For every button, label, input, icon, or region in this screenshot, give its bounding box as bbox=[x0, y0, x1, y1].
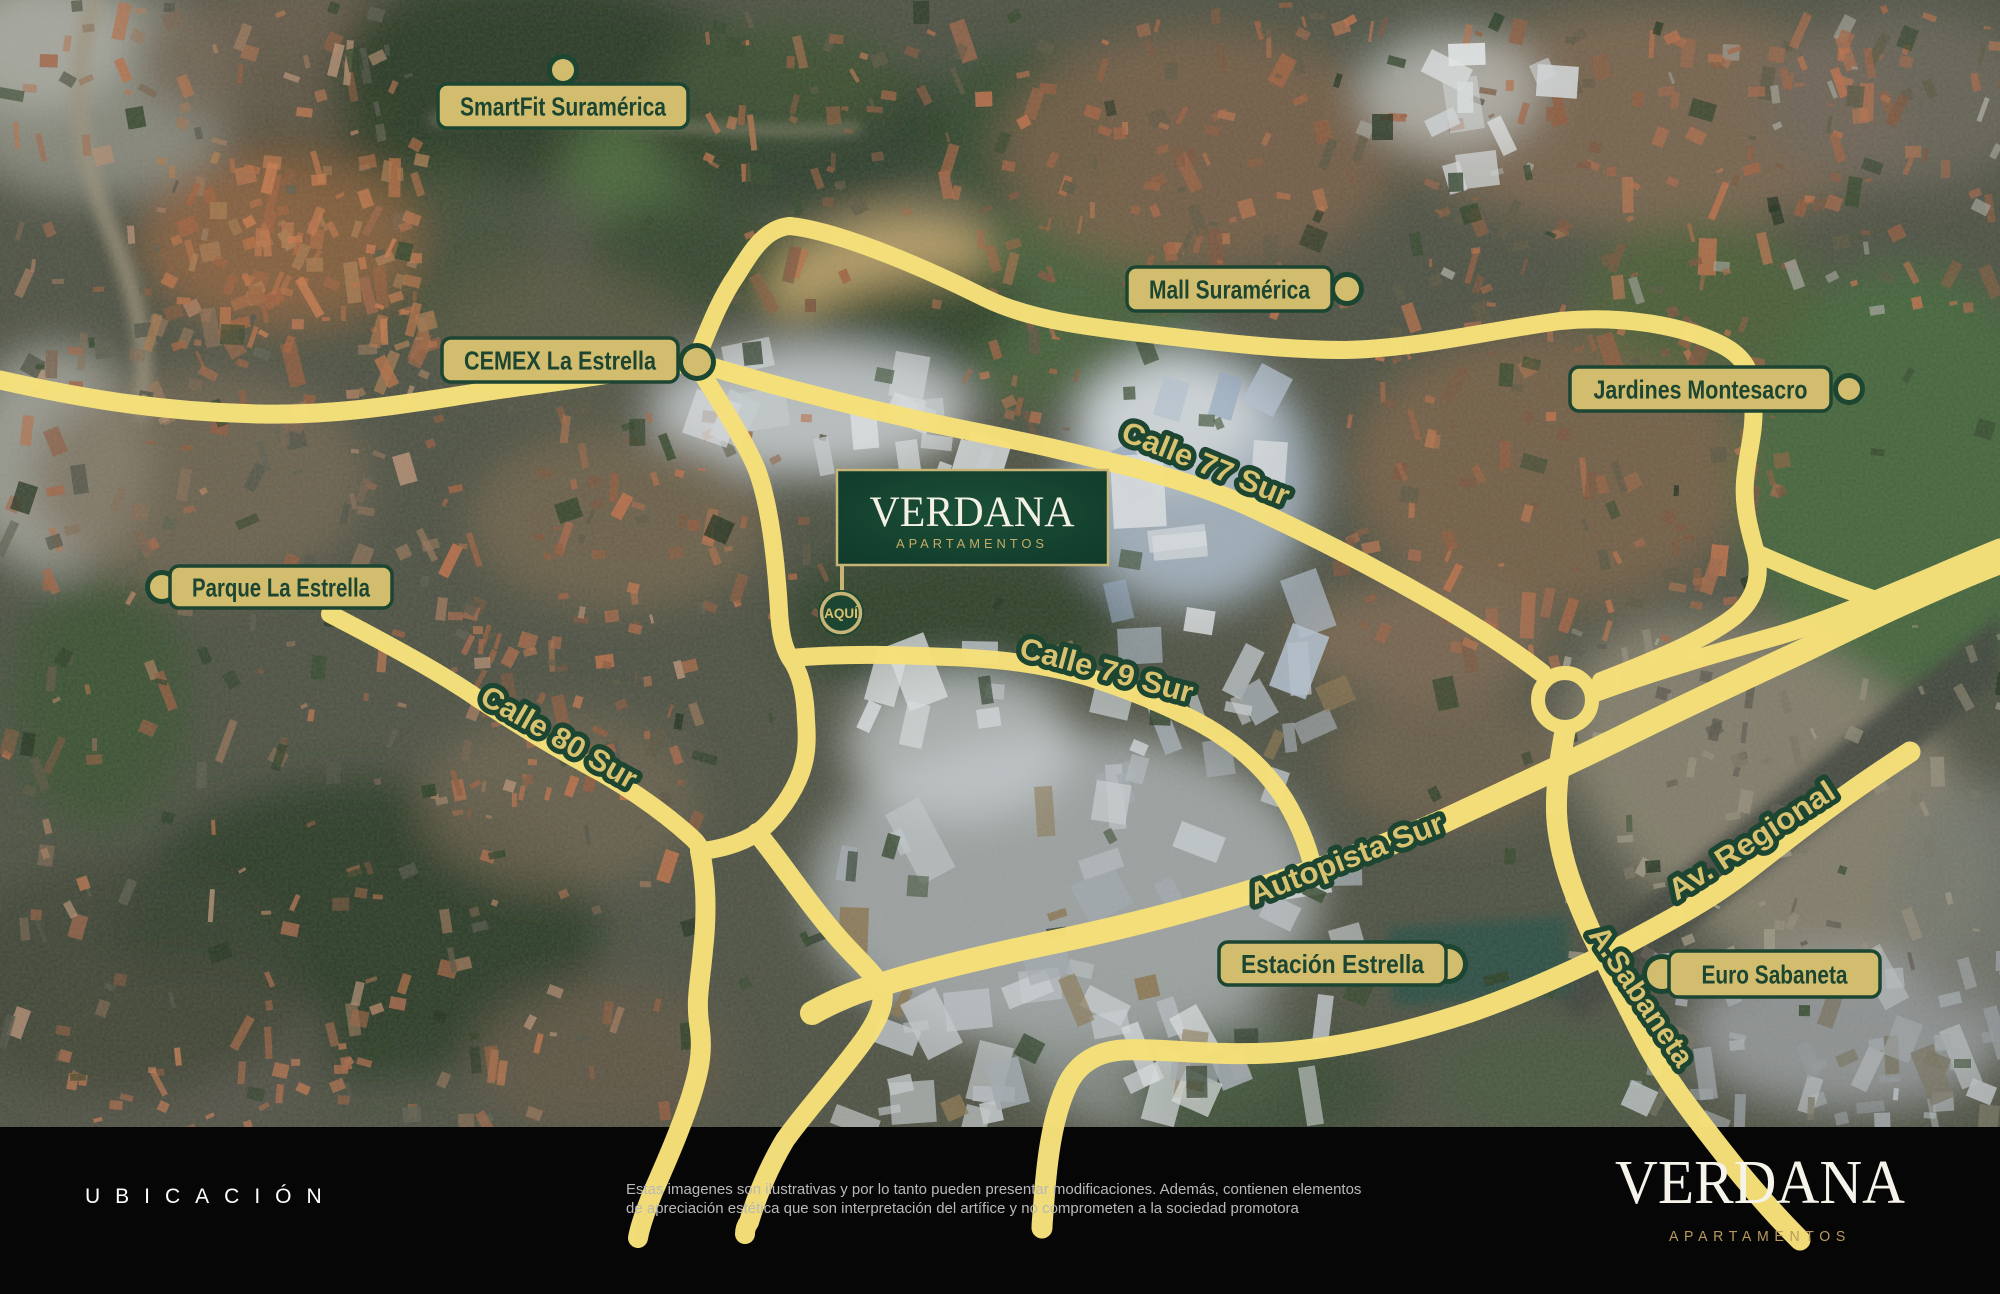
svg-text:SmartFit Suramérica: SmartFit Suramérica bbox=[460, 91, 666, 121]
svg-text:VERDANA: VERDANA bbox=[870, 489, 1075, 536]
svg-text:AQUÍ: AQUÍ bbox=[824, 606, 859, 621]
svg-text:CEMEX La Estrella: CEMEX La Estrella bbox=[464, 345, 656, 375]
svg-text:Estas imagenes son ilustrativa: Estas imagenes son ilustrativas y por lo… bbox=[626, 1181, 1361, 1198]
svg-text:Euro Sabaneta: Euro Sabaneta bbox=[1702, 959, 1848, 989]
svg-text:VERDANA: VERDANA bbox=[1615, 1149, 1905, 1217]
svg-text:APARTAMENTOS: APARTAMENTOS bbox=[1669, 1228, 1851, 1245]
svg-text:APARTAMENTOS: APARTAMENTOS bbox=[896, 536, 1048, 551]
svg-text:Estación Estrella: Estación Estrella bbox=[1241, 949, 1424, 979]
svg-text:de apreciación estética que so: de apreciación estética que son interpre… bbox=[626, 1200, 1300, 1217]
svg-text:Jardines Montesacro: Jardines Montesacro bbox=[1594, 374, 1808, 404]
svg-text:UBICACIÓN: UBICACIÓN bbox=[85, 1185, 337, 1208]
svg-text:Parque La Estrella: Parque La Estrella bbox=[192, 572, 370, 602]
svg-text:Mall Suramérica: Mall Suramérica bbox=[1149, 274, 1310, 304]
